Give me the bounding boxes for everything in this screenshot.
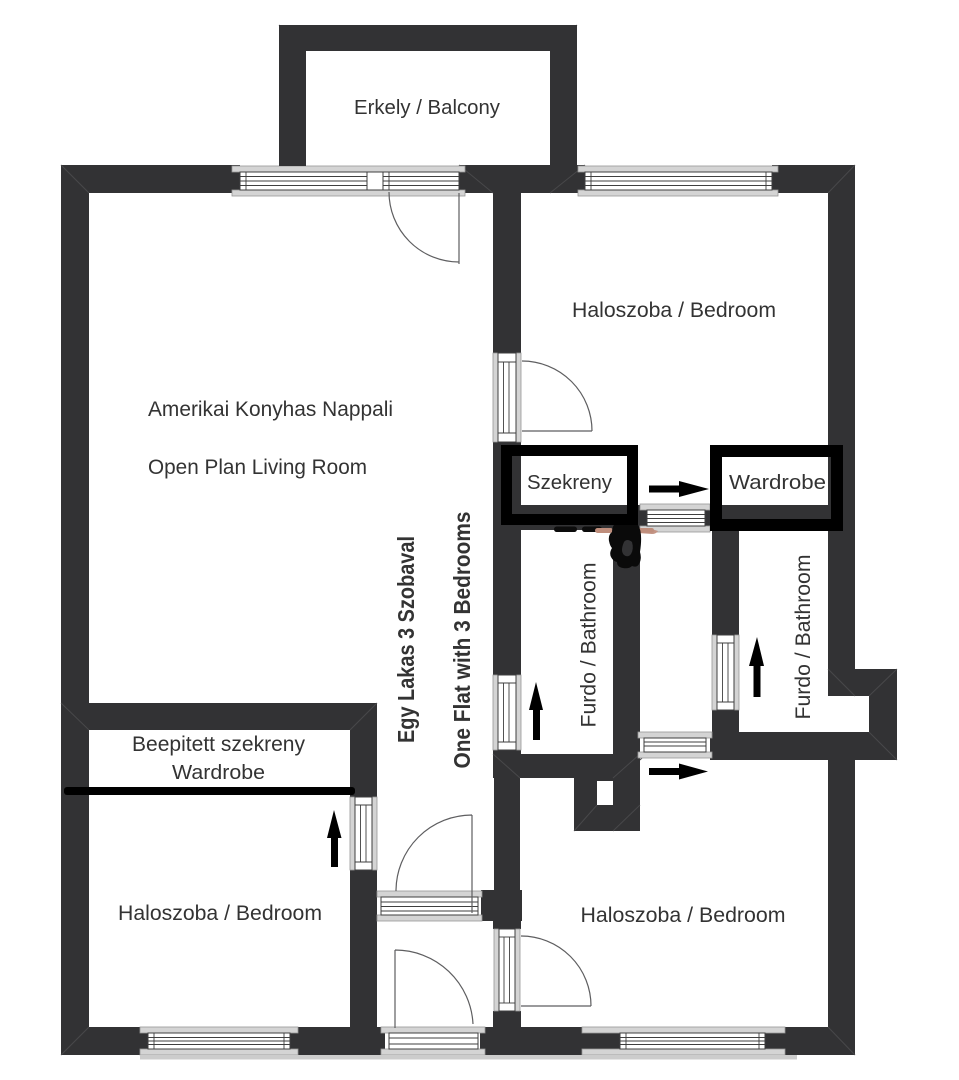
svg-text:Szekreny: Szekreny (527, 471, 613, 494)
svg-text:Egy Lakas 3 Szobaval: Egy Lakas 3 Szobaval (393, 536, 419, 743)
svg-text:Wardrobe: Wardrobe (172, 762, 265, 784)
svg-text:Haloszoba / Bedroom: Haloszoba / Bedroom (581, 904, 786, 927)
svg-text:Furdo / Bathroom: Furdo / Bathroom (577, 563, 601, 728)
svg-text:Haloszoba / Bedroom: Haloszoba / Bedroom (118, 902, 322, 925)
svg-text:Amerikai Konyhas Nappali: Amerikai Konyhas Nappali (148, 398, 393, 421)
svg-text:Open Plan Living Room: Open Plan Living Room (148, 456, 367, 479)
svg-text:Furdo / Bathroom: Furdo / Bathroom (791, 555, 815, 720)
svg-text:Haloszoba / Bedroom: Haloszoba / Bedroom (572, 299, 776, 322)
svg-text:Wardrobe: Wardrobe (729, 471, 826, 494)
svg-text:Erkely / Balcony: Erkely / Balcony (354, 96, 501, 119)
svg-text:One Flat with 3 Bedrooms: One Flat with 3 Bedrooms (449, 512, 475, 769)
svg-text:Beepitett szekreny: Beepitett szekreny (132, 733, 305, 756)
